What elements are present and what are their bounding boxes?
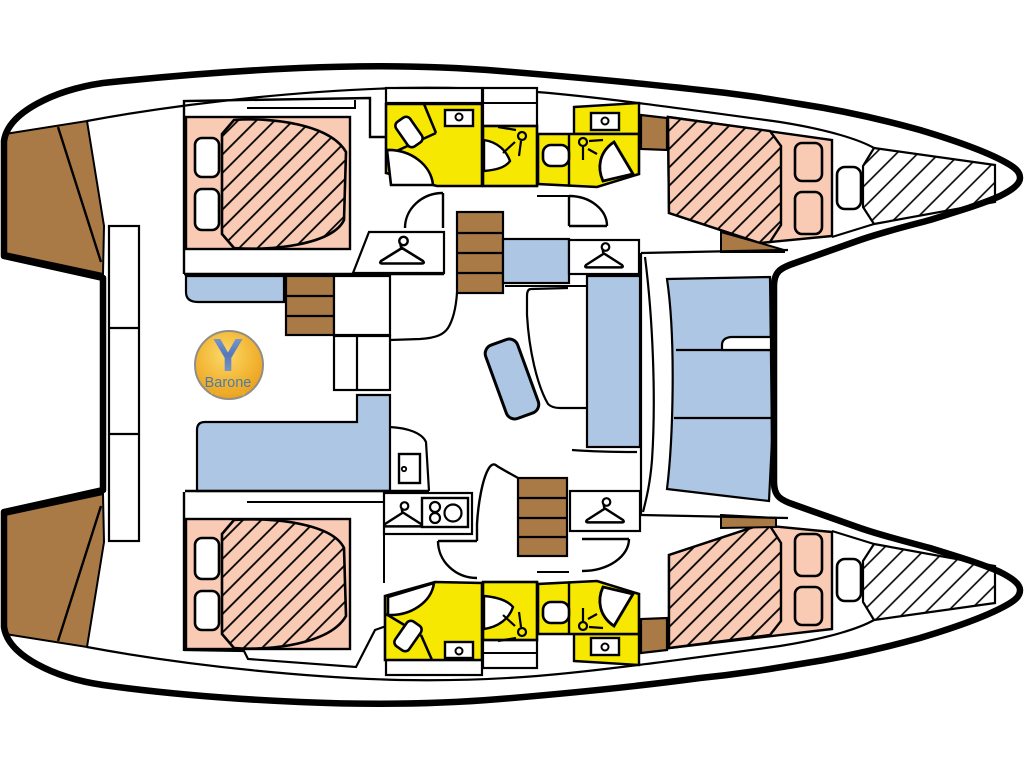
svg-text:Yachting: Yachting: [210, 390, 247, 397]
svg-text:Barone: Barone: [205, 375, 252, 391]
svg-text:Y: Y: [213, 329, 244, 381]
